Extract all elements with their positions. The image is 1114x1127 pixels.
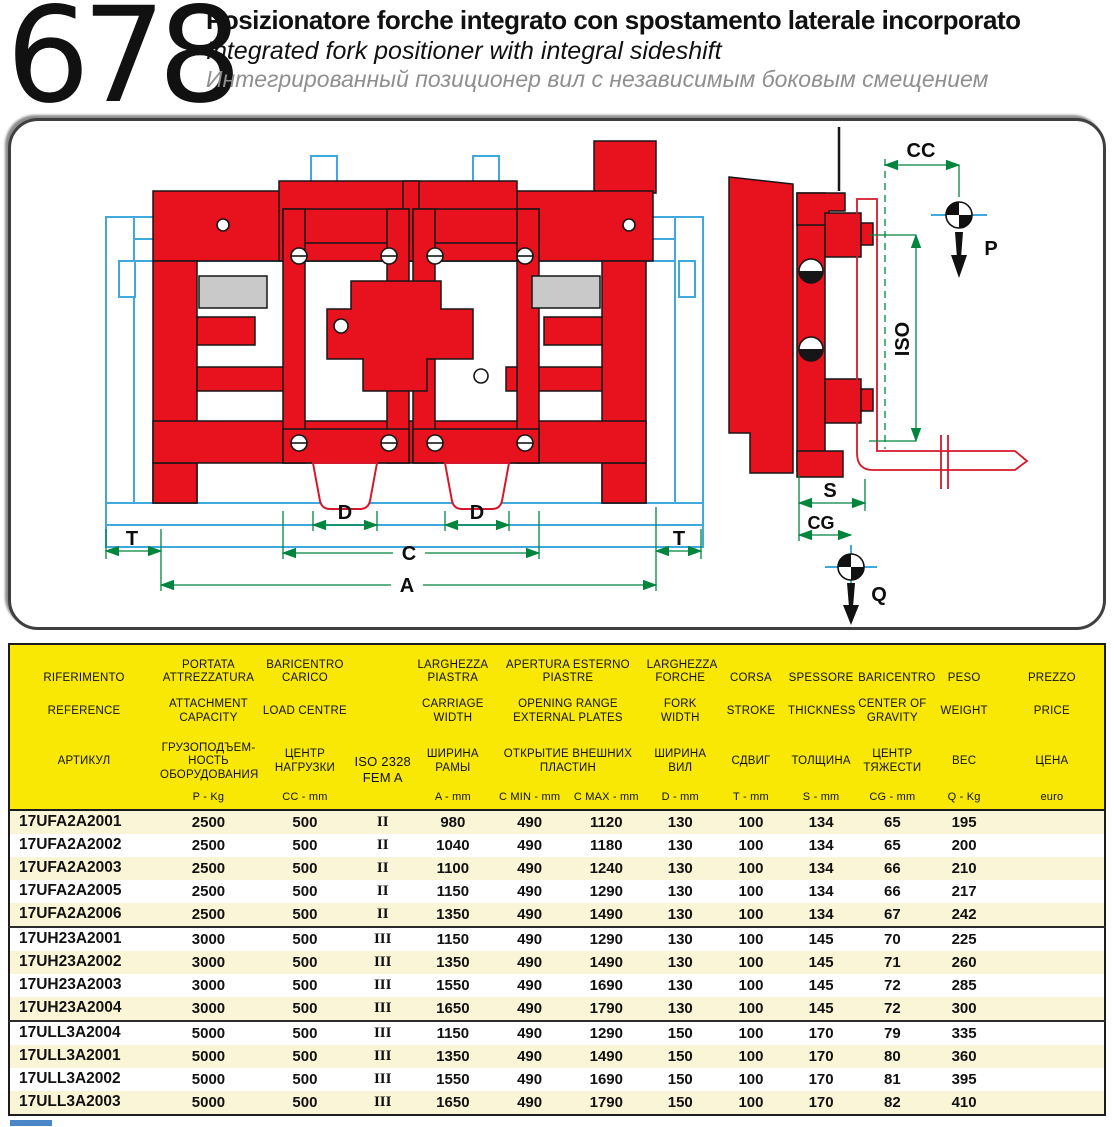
col-thickness-en: THICKNESS [786,690,856,734]
value-cell: 490 [491,834,568,857]
value-cell: 79 [856,1021,928,1045]
col-opening-ru: ОТКРЫТИЕ ВНЕШНИХ ПЛАСТИН [491,734,644,790]
value-cell: 1490 [568,951,645,974]
positioner-body [153,141,656,503]
value-cell: 130 [645,974,716,997]
value-cell: 1290 [568,927,645,951]
value-cell: 170 [786,1091,856,1115]
value-cell: 217 [929,880,1000,903]
value-cell: 490 [491,1091,568,1115]
value-cell: 130 [645,951,716,974]
value-cell: 490 [491,1068,568,1091]
col-cog-it: BARICENTRO [856,644,928,690]
value-cell: 490 [491,810,568,834]
value-cell [1000,997,1105,1021]
value-cell: 100 [716,974,786,997]
value-cell: 3000 [158,951,259,974]
col-load-centre-it: BARICENTRO CARICO [259,644,351,690]
col-capacity-en: ATTACHMENT CAPACITY [158,690,259,734]
value-cell: 100 [716,834,786,857]
value-cell: 500 [259,903,351,927]
value-cell: 145 [786,974,856,997]
col-stroke-ru: СДВИГ [716,734,786,790]
value-cell: 80 [856,1045,928,1068]
col-stroke-it: CORSA [716,644,786,690]
reference-cell: 17UFA2A2006 [9,903,158,927]
unit-carriage-width: A - mm [415,790,492,810]
col-opening-en: OPENING RANGE EXTERNAL PLATES [491,690,644,734]
col-cog-en: CENTER OF GRAVITY [856,690,928,734]
dim-label-t-left: T [126,528,138,550]
value-cell: III [351,951,415,974]
col-thickness-ru: ТОЛЩИНА [786,734,856,790]
value-cell: 150 [645,1045,716,1068]
value-cell: 170 [786,1021,856,1045]
value-cell: 130 [645,810,716,834]
value-cell: 3000 [158,927,259,951]
value-cell: 100 [716,810,786,834]
value-cell: 150 [645,1091,716,1115]
value-cell: 100 [716,1068,786,1091]
table-row: 17ULL3A20045000500III1150490129015010017… [9,1021,1105,1045]
value-cell: 72 [856,997,928,1021]
value-cell: III [351,1021,415,1045]
title-block: Posizionatore forche integrato con spost… [206,2,1021,93]
value-cell: 500 [259,974,351,997]
value-cell: 65 [856,810,928,834]
side-view: CC P ISO S CG Q [729,127,1027,625]
value-cell: 150 [645,1068,716,1091]
unit-cog: CG - mm [856,790,928,810]
dim-label-a: A [400,575,414,597]
title-italian: Posizionatore forche integrato con spost… [206,6,1021,36]
dim-label-iso: ISO [892,322,914,356]
value-cell: 1550 [415,1068,492,1091]
reference-cell: 17UFA2A2003 [9,857,158,880]
value-cell: 1650 [415,997,492,1021]
reference-cell: 17ULL3A2002 [9,1068,158,1091]
value-cell: 130 [645,903,716,927]
value-cell: 5000 [158,1045,259,1068]
dim-label-c: C [402,543,416,565]
dim-label-p: P [984,238,997,260]
value-cell: 5000 [158,1091,259,1115]
reference-cell: 17UH23A2003 [9,974,158,997]
col-price-it: PREZZO [1000,644,1105,690]
value-cell: 1350 [415,1045,492,1068]
value-cell: 500 [259,810,351,834]
dim-label-s: S [823,480,836,502]
value-cell: 1040 [415,834,492,857]
unit-fork-width: D - mm [645,790,716,810]
value-cell: 100 [716,997,786,1021]
table-row: 17UH23A20043000500III1650490179013010014… [9,997,1105,1021]
value-cell: 2500 [158,857,259,880]
col-reference-en: REFERENCE [9,690,158,734]
value-cell: 225 [929,927,1000,951]
unit-c-max: C MAX - mm [568,790,645,810]
value-cell: 145 [786,951,856,974]
table-header: RIFERIMENTO PORTATA ATTREZZATURA BARICEN… [9,644,1105,810]
table-row: 17UFA2A20032500500II11004901240130100134… [9,857,1105,880]
value-cell: 170 [786,1045,856,1068]
value-cell: III [351,1045,415,1068]
value-cell [1000,951,1105,974]
unit-load-centre: CC - mm [259,790,351,810]
col-capacity-ru: ГРУЗОПОДЪЕМ-НОСТЬ ОБОРУДОВАНИЯ [158,734,259,790]
value-cell: 1100 [415,857,492,880]
fork-side-outline [857,199,1027,489]
value-cell: III [351,1068,415,1091]
value-cell: II [351,903,415,927]
value-cell: 134 [786,857,856,880]
col-iso-standard: ISO 2328 FEM A [351,644,415,790]
unit-stroke: T - mm [716,790,786,810]
value-cell: 395 [929,1068,1000,1091]
value-cell: III [351,927,415,951]
col-weight-it: PESO [929,644,1000,690]
value-cell: 72 [856,974,928,997]
value-cell: 2500 [158,810,259,834]
value-cell: 71 [856,951,928,974]
reference-cell: 17UH23A2002 [9,951,158,974]
value-cell: 100 [716,1091,786,1115]
col-thickness-it: SPESSORE [786,644,856,690]
value-cell: 145 [786,927,856,951]
value-cell: 500 [259,880,351,903]
col-load-centre-ru: ЦЕНТР НАГРУЗКИ [259,734,351,790]
dim-label-d-left: D [338,502,352,524]
value-cell: 100 [716,880,786,903]
col-weight-ru: ВЕС [929,734,1000,790]
value-cell: 500 [259,1045,351,1068]
value-cell: 170 [786,1068,856,1091]
value-cell: 1350 [415,951,492,974]
title-russian: Интегрированный позиционер вил с независ… [206,66,1021,94]
value-cell: III [351,1091,415,1115]
value-cell: 1350 [415,903,492,927]
value-cell: 500 [259,834,351,857]
col-fork-width-it: LARGHEZZA FORCHE [645,644,716,690]
value-cell: 1690 [568,974,645,997]
value-cell: 66 [856,880,928,903]
value-cell: 100 [716,857,786,880]
value-cell [1000,974,1105,997]
front-view: T D D C A T [106,141,703,597]
value-cell: 410 [929,1091,1000,1115]
value-cell: 500 [259,951,351,974]
value-cell: 490 [491,1021,568,1045]
value-cell: 500 [259,857,351,880]
value-cell: II [351,857,415,880]
value-cell: 1150 [415,1021,492,1045]
value-cell: 134 [786,810,856,834]
value-cell: 980 [415,810,492,834]
value-cell: 81 [856,1068,928,1091]
table-row: 17UH23A20013000500III1150490129013010014… [9,927,1105,951]
footer-fragment [10,1120,52,1126]
spec-table: RIFERIMENTO PORTATA ATTREZZATURA BARICEN… [8,643,1106,1116]
load-centre-symbol-q [825,545,877,625]
value-cell: 1290 [568,880,645,903]
value-cell: 242 [929,903,1000,927]
value-cell [1000,857,1105,880]
dim-label-d-right: D [470,502,484,524]
value-cell: 130 [645,997,716,1021]
value-cell [1000,927,1105,951]
value-cell: 130 [645,927,716,951]
value-cell: 210 [929,857,1000,880]
unit-reference [9,790,158,810]
value-cell [1000,834,1105,857]
reference-cell: 17UFA2A2001 [9,810,158,834]
col-carriage-width-ru: ШИРИНА РАМЫ [415,734,492,790]
reference-cell: 17UH23A2001 [9,927,158,951]
reference-cell: 17UH23A2004 [9,997,158,1021]
value-cell: 1550 [415,974,492,997]
value-cell: 1650 [415,1091,492,1115]
col-fork-width-ru: ШИРИНА ВИЛ [645,734,716,790]
value-cell: 70 [856,927,928,951]
value-cell: 100 [716,951,786,974]
col-load-centre-en: LOAD CENTRE [259,690,351,734]
value-cell: 1690 [568,1068,645,1091]
value-cell: 1290 [568,1021,645,1045]
unit-weight: Q - Kg [929,790,1000,810]
unit-capacity: P - Kg [158,790,259,810]
value-cell [1000,1091,1105,1115]
value-cell [1000,1045,1105,1068]
value-cell: 100 [716,1045,786,1068]
value-cell [1000,1068,1105,1091]
value-cell [1000,1021,1105,1045]
col-price-en: PRICE [1000,690,1105,734]
value-cell: 100 [716,903,786,927]
value-cell: 82 [856,1091,928,1115]
dim-label-cg: CG [808,513,835,533]
reference-cell: 17UFA2A2002 [9,834,158,857]
value-cell: 490 [491,880,568,903]
value-cell: 500 [259,1021,351,1045]
load-centre-symbol-p [931,202,987,278]
col-stroke-en: STROKE [716,690,786,734]
dim-label-q: Q [871,584,887,606]
value-cell: 130 [645,857,716,880]
page-header: 678 Posizionatore forche integrato con s… [0,0,1114,114]
value-cell: 195 [929,810,1000,834]
dim-label-cc: CC [907,140,936,162]
value-cell: 1180 [568,834,645,857]
value-cell: 67 [856,903,928,927]
value-cell: 1490 [568,903,645,927]
value-cell: 1790 [568,997,645,1021]
reference-cell: 17UFA2A2005 [9,880,158,903]
value-cell: 100 [716,927,786,951]
page-number: 678 [6,2,206,110]
title-english: Integrated fork positioner with integral… [206,36,1021,66]
col-reference-ru: АРТИКУЛ [9,734,158,790]
col-opening-it: APERTURA ESTERNO PIASTRE [491,644,644,690]
table-row: 17UH23A20033000500III1550490169013010014… [9,974,1105,997]
table-row: 17UFA2A20022500500II10404901180130100134… [9,834,1105,857]
technical-drawing-svg: T D D C A T [11,121,1103,627]
unit-c-min: C MIN - mm [491,790,568,810]
value-cell: 2500 [158,880,259,903]
value-cell: 1790 [568,1091,645,1115]
value-cell: 500 [259,997,351,1021]
value-cell: 1120 [568,810,645,834]
value-cell: 150 [645,1021,716,1045]
col-fork-width-en: FORK WIDTH [645,690,716,734]
table-row: 17UFA2A20052500500II11504901290130100134… [9,880,1105,903]
col-weight-en: WEIGHT [929,690,1000,734]
col-reference-it: RIFERIMENTO [9,644,158,690]
col-price-ru: ЦЕНА [1000,734,1105,790]
value-cell: 500 [259,1068,351,1091]
value-cell: 2500 [158,834,259,857]
value-cell: 134 [786,880,856,903]
table-row: 17UFA2A20012500500II98049011201301001346… [9,810,1105,834]
value-cell: 490 [491,951,568,974]
value-cell: 134 [786,834,856,857]
dim-label-t-right: T [673,528,685,550]
unit-thickness: S - mm [786,790,856,810]
value-cell: 5000 [158,1068,259,1091]
value-cell: 3000 [158,974,259,997]
value-cell: 2500 [158,903,259,927]
value-cell: 65 [856,834,928,857]
value-cell [1000,903,1105,927]
value-cell: 1150 [415,880,492,903]
value-cell: 285 [929,974,1000,997]
value-cell: 200 [929,834,1000,857]
table-row: 17UH23A20023000500III1350490149013010014… [9,951,1105,974]
value-cell: II [351,810,415,834]
table-row: 17ULL3A20035000500III1650490179015010017… [9,1091,1105,1115]
value-cell: 100 [716,1021,786,1045]
value-cell: 260 [929,951,1000,974]
value-cell: 490 [491,997,568,1021]
table-row: 17ULL3A20025000500III1550490169015010017… [9,1068,1105,1091]
value-cell: 490 [491,857,568,880]
value-cell: III [351,997,415,1021]
col-carriage-width-en: CARRIAGE WIDTH [415,690,492,734]
value-cell: 490 [491,1045,568,1068]
value-cell: 360 [929,1045,1000,1068]
side-carriage [797,193,873,477]
reference-cell: 17ULL3A2004 [9,1021,158,1045]
value-cell: III [351,974,415,997]
value-cell: 500 [259,927,351,951]
value-cell: 490 [491,974,568,997]
value-cell: 5000 [158,1021,259,1045]
value-cell: 335 [929,1021,1000,1045]
value-cell: 500 [259,1091,351,1115]
reference-cell: 17ULL3A2001 [9,1045,158,1068]
value-cell [1000,810,1105,834]
value-cell [1000,880,1105,903]
table-body: 17UFA2A20012500500II98049011201301001346… [9,810,1105,1115]
value-cell: 130 [645,880,716,903]
value-cell: II [351,834,415,857]
unit-price: euro [1000,790,1105,810]
value-cell: 1490 [568,1045,645,1068]
col-cog-ru: ЦЕНТР ТЯЖЕСТИ [856,734,928,790]
reference-cell: 17ULL3A2003 [9,1091,158,1115]
value-cell: 130 [645,834,716,857]
value-cell: 1150 [415,927,492,951]
drawing-box: T D D C A T [8,118,1106,630]
value-cell: 490 [491,903,568,927]
value-cell: 134 [786,903,856,927]
unit-iso [351,790,415,810]
value-cell: II [351,880,415,903]
value-cell: 490 [491,927,568,951]
table-row: 17ULL3A20015000500III1350490149015010017… [9,1045,1105,1068]
value-cell: 3000 [158,997,259,1021]
value-cell: 300 [929,997,1000,1021]
value-cell: 145 [786,997,856,1021]
col-capacity-it: PORTATA ATTREZZATURA [158,644,259,690]
col-carriage-width-it: LARGHEZZA PIASTRA [415,644,492,690]
table-row: 17UFA2A20062500500II13504901490130100134… [9,903,1105,927]
mast-profile [729,177,793,473]
value-cell: 66 [856,857,928,880]
value-cell: 1240 [568,857,645,880]
